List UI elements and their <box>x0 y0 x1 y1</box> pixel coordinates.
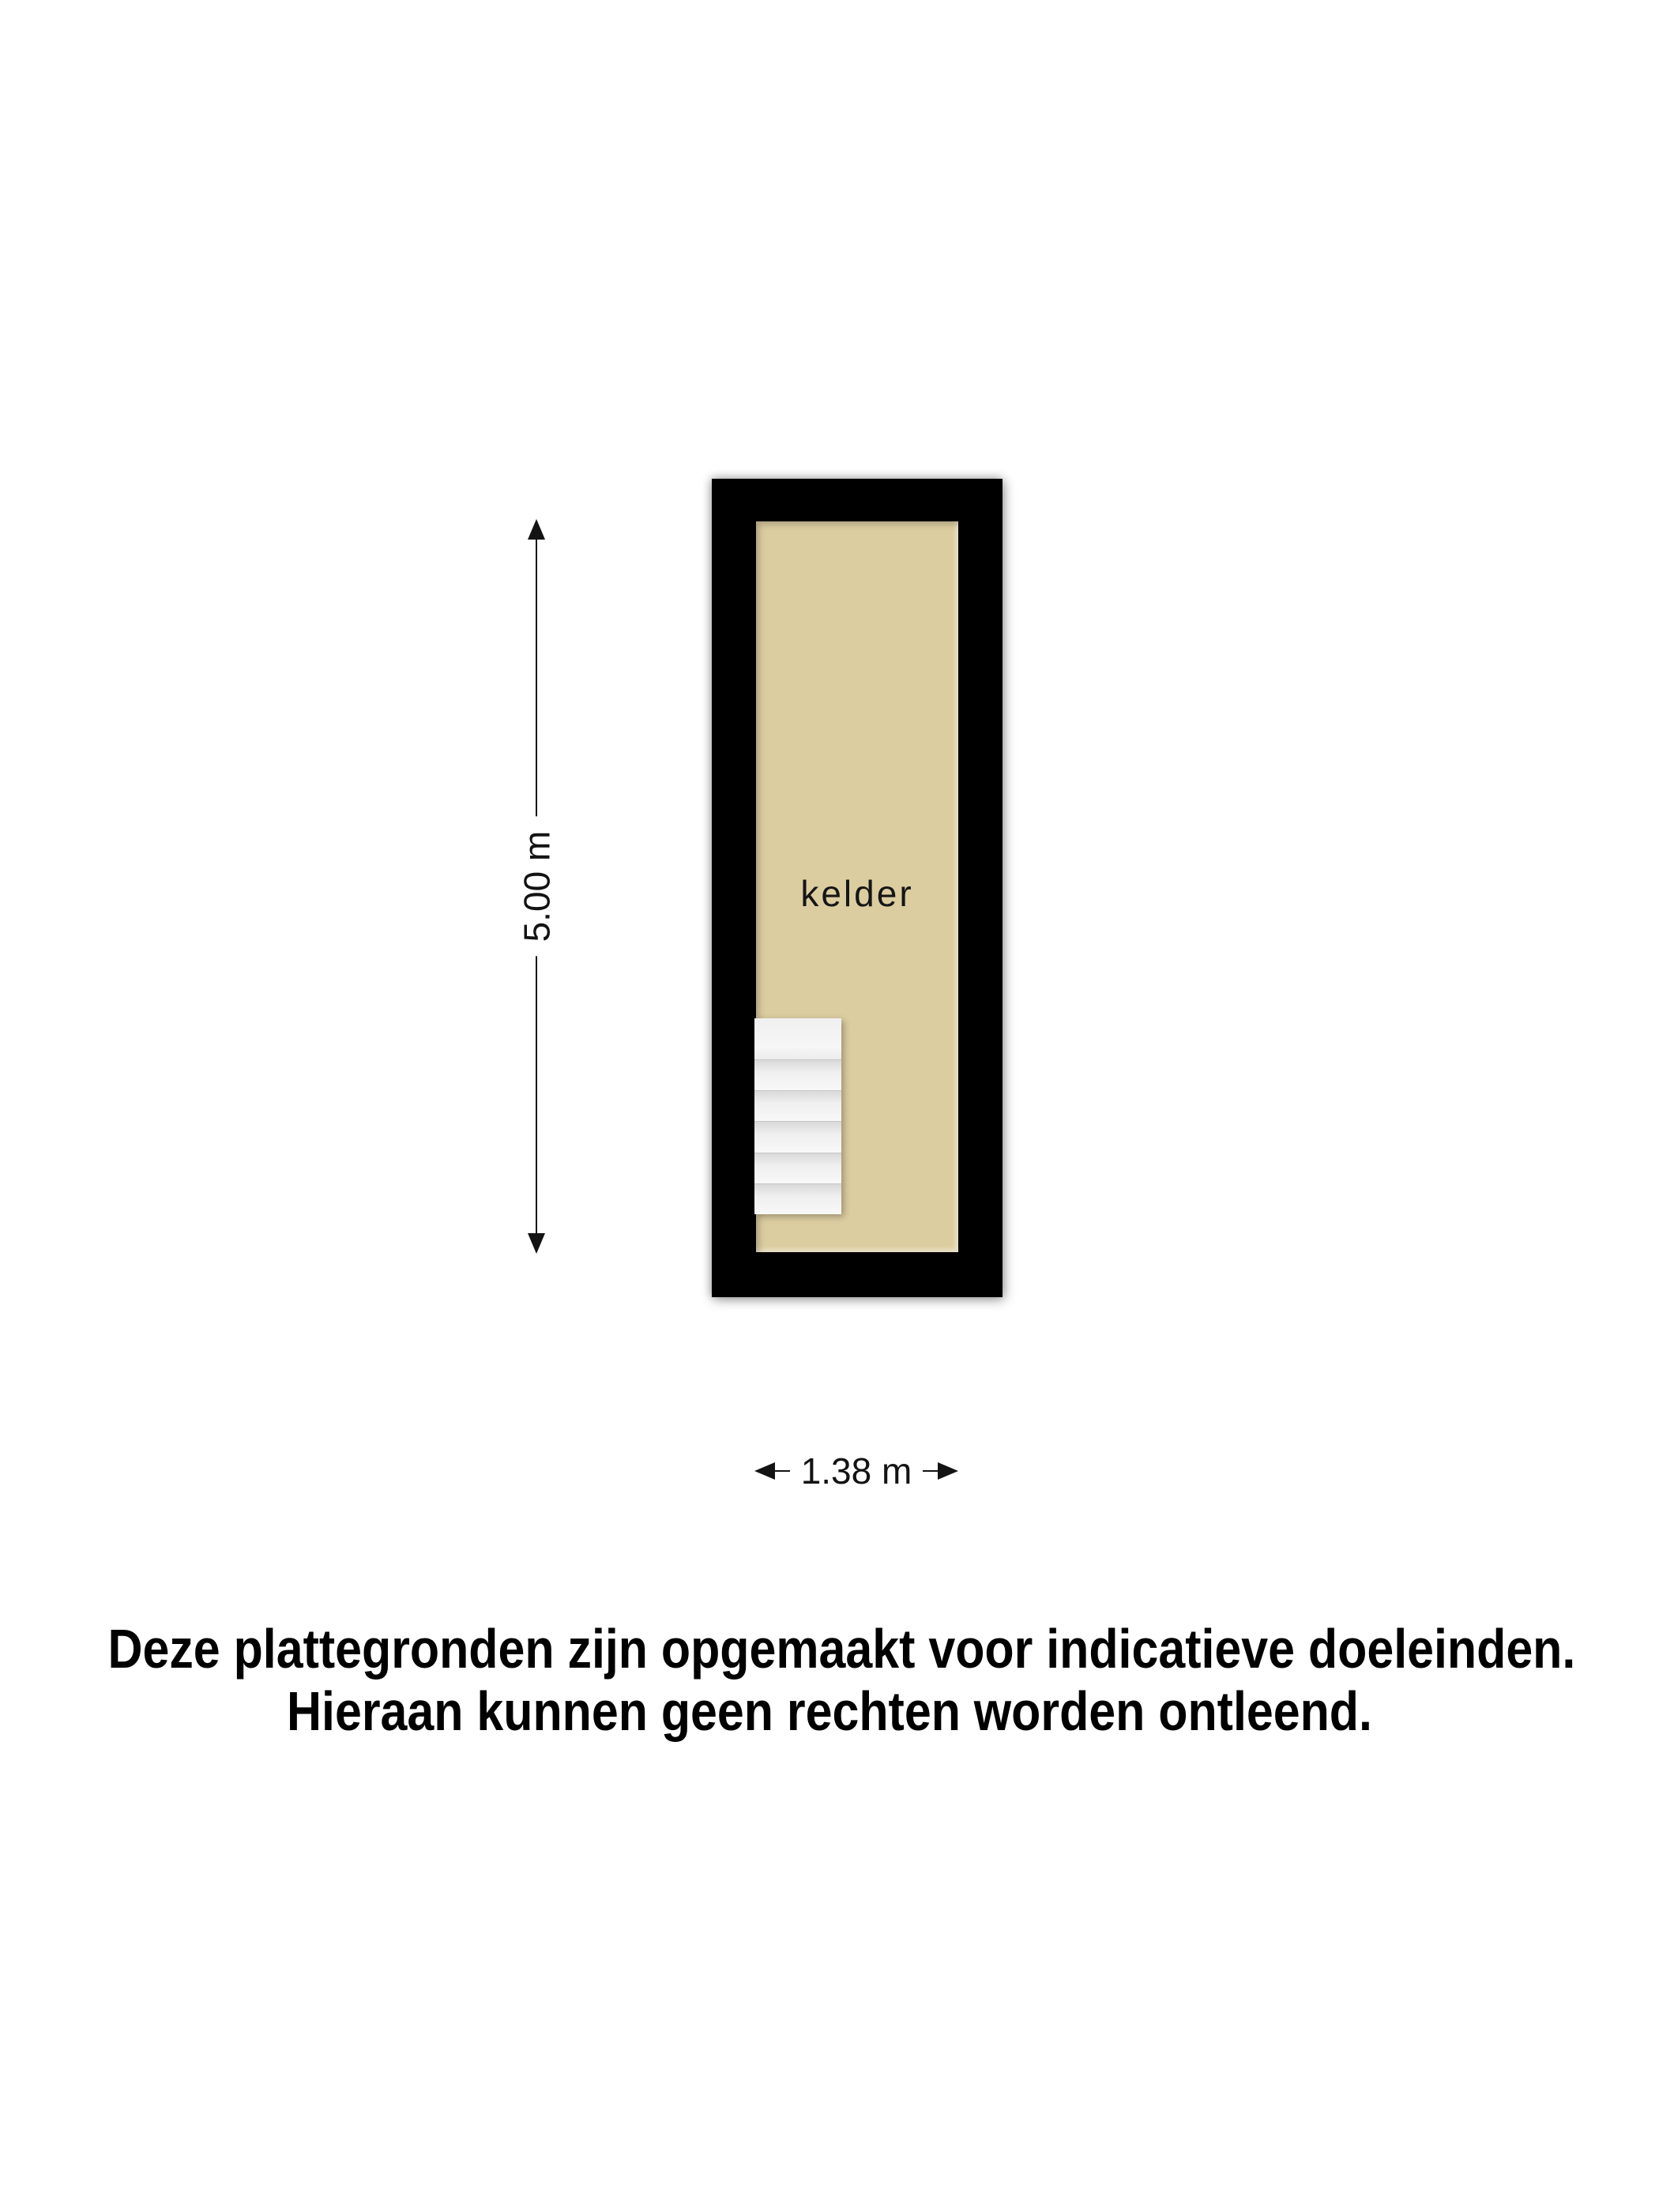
page: kelder 5.00 m 1.38 m Deze plattegronden … <box>0 0 1659 2212</box>
stair-tread <box>754 1121 841 1152</box>
stair-tread <box>754 1090 841 1121</box>
arrow-right-icon <box>938 1462 958 1480</box>
staircase <box>754 1018 841 1214</box>
dimension-vertical: 5.00 m <box>514 519 559 1254</box>
dimension-line-right <box>923 1470 938 1472</box>
stair-tread <box>754 1018 841 1059</box>
arrow-down-icon <box>528 1233 545 1254</box>
dimension-line-left <box>775 1470 790 1472</box>
arrow-left-icon <box>754 1462 775 1480</box>
floor-plan-walls: kelder <box>712 479 1003 1297</box>
dimension-label-vertical: 5.00 m <box>510 817 562 957</box>
room-floor: kelder <box>756 521 958 1252</box>
disclaimer: Deze plattegronden zijn opgemaakt voor i… <box>0 1618 1659 1743</box>
dimension-horizontal: 1.38 m <box>754 1449 958 1493</box>
dimension-label-horizontal: 1.38 m <box>790 1453 924 1489</box>
room-label: kelder <box>756 872 958 915</box>
stair-tread <box>754 1153 841 1183</box>
disclaimer-line-1: Deze plattegronden zijn opgemaakt voor i… <box>108 1618 1552 1680</box>
stair-tread <box>754 1059 841 1090</box>
disclaimer-line-2: Hieraan kunnen geen rechten worden ontle… <box>108 1680 1552 1743</box>
stair-tread <box>754 1183 841 1214</box>
